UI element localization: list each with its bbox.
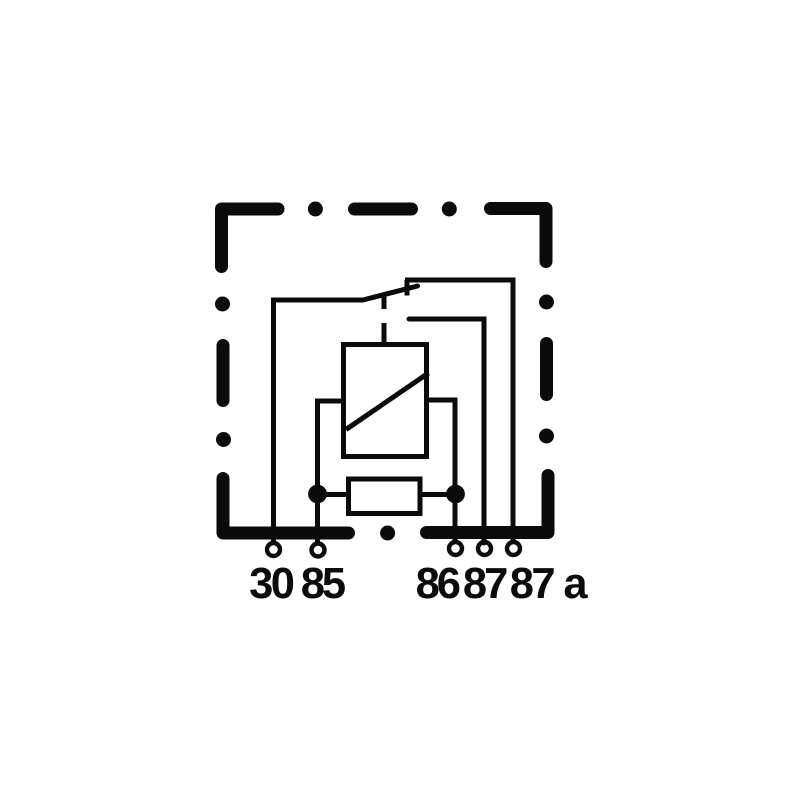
- svg-text:a: a: [563, 560, 588, 608]
- svg-text:86: 86: [416, 560, 460, 608]
- svg-text:87: 87: [510, 560, 555, 608]
- svg-text:85: 85: [301, 560, 345, 608]
- svg-text:30: 30: [249, 560, 294, 608]
- svg-text:87: 87: [463, 560, 507, 608]
